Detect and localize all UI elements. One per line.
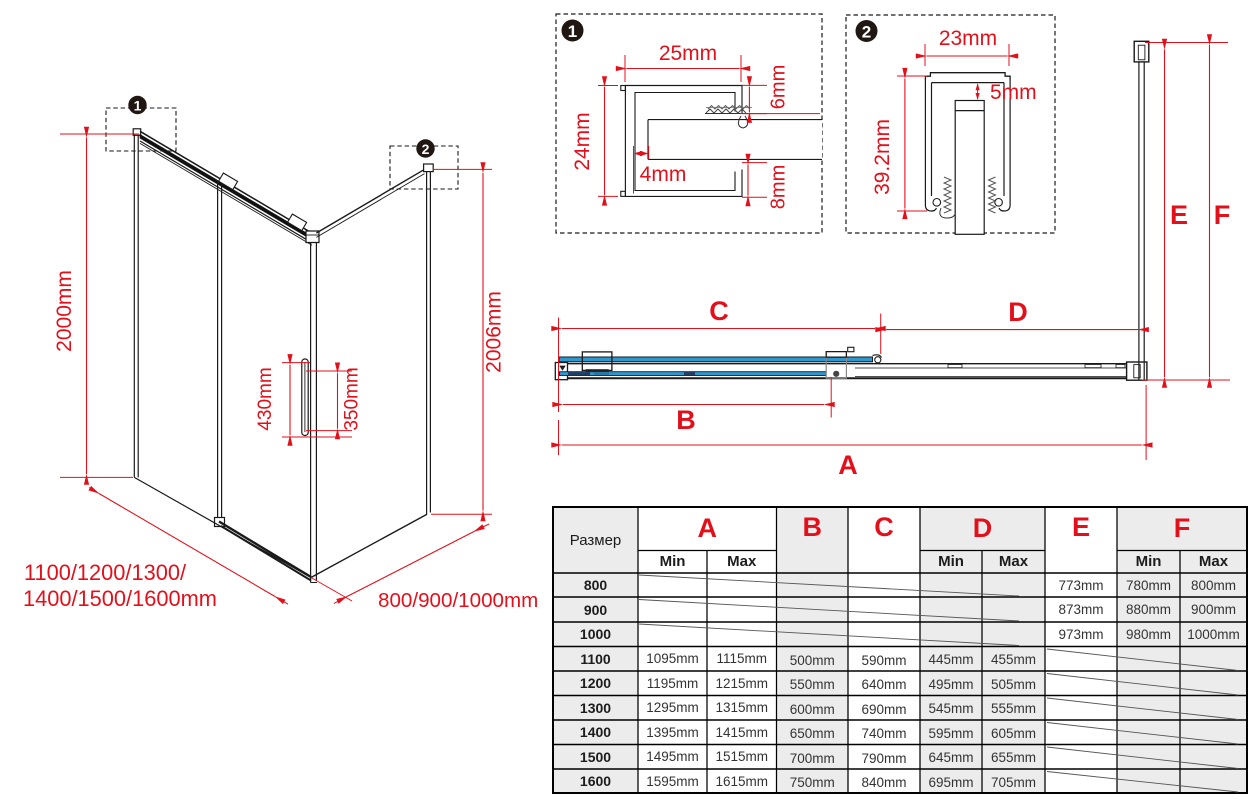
svg-text:800/900/1000mm: 800/900/1000mm xyxy=(378,589,538,612)
svg-text:2: 2 xyxy=(422,141,430,157)
svg-text:5mm: 5mm xyxy=(990,81,1037,104)
svg-text:2: 2 xyxy=(862,23,871,42)
svg-text:430mm: 430mm xyxy=(255,367,276,430)
svg-text:25mm: 25mm xyxy=(659,42,717,65)
svg-text:1: 1 xyxy=(568,22,577,41)
svg-text:2000mm: 2000mm xyxy=(53,270,76,352)
svg-text:B: B xyxy=(676,405,696,435)
svg-text:4mm: 4mm xyxy=(640,163,687,186)
svg-text:C: C xyxy=(709,296,729,326)
svg-text:6mm: 6mm xyxy=(768,65,790,109)
svg-text:2006mm: 2006mm xyxy=(483,291,506,373)
svg-text:A: A xyxy=(838,450,858,480)
svg-text:1400/1500/1600mm: 1400/1500/1600mm xyxy=(23,586,217,611)
svg-text:1100/1200/1300/: 1100/1200/1300/ xyxy=(24,560,187,585)
svg-text:23mm: 23mm xyxy=(939,27,997,50)
svg-text:8mm: 8mm xyxy=(768,165,790,209)
svg-text:E: E xyxy=(1170,200,1188,230)
svg-text:350mm: 350mm xyxy=(342,367,363,430)
svg-text:D: D xyxy=(1008,297,1028,327)
svg-text:1: 1 xyxy=(134,98,142,114)
svg-text:24mm: 24mm xyxy=(571,112,594,170)
svg-text:39.2mm: 39.2mm xyxy=(871,119,894,195)
svg-text:F: F xyxy=(1214,200,1231,230)
